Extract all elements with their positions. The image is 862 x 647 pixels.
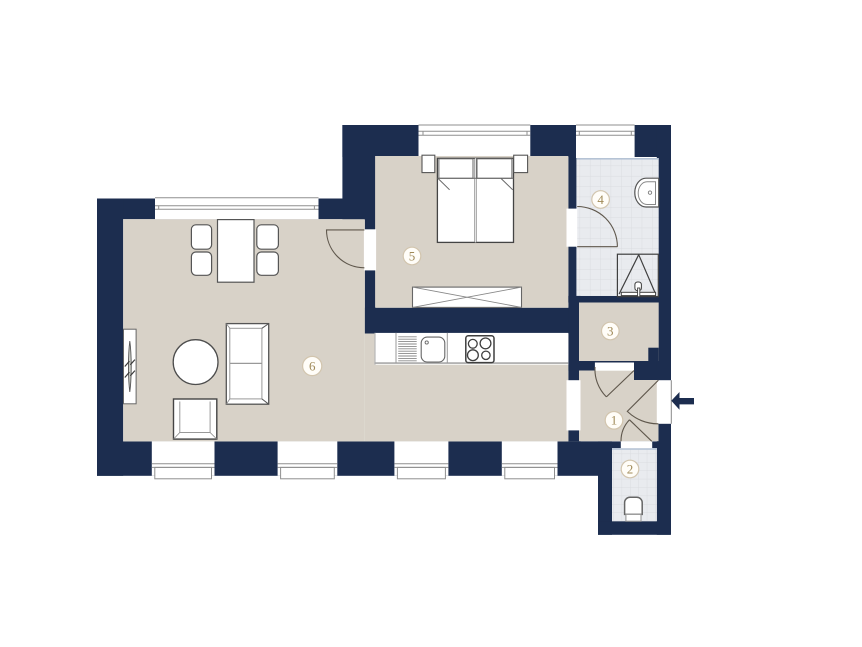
svg-text:6: 6 <box>309 359 316 374</box>
svg-text:3: 3 <box>607 323 614 338</box>
svg-text:2: 2 <box>627 461 634 476</box>
svg-text:4: 4 <box>597 192 604 207</box>
svg-text:1: 1 <box>611 413 618 428</box>
svg-text:5: 5 <box>409 248 416 263</box>
